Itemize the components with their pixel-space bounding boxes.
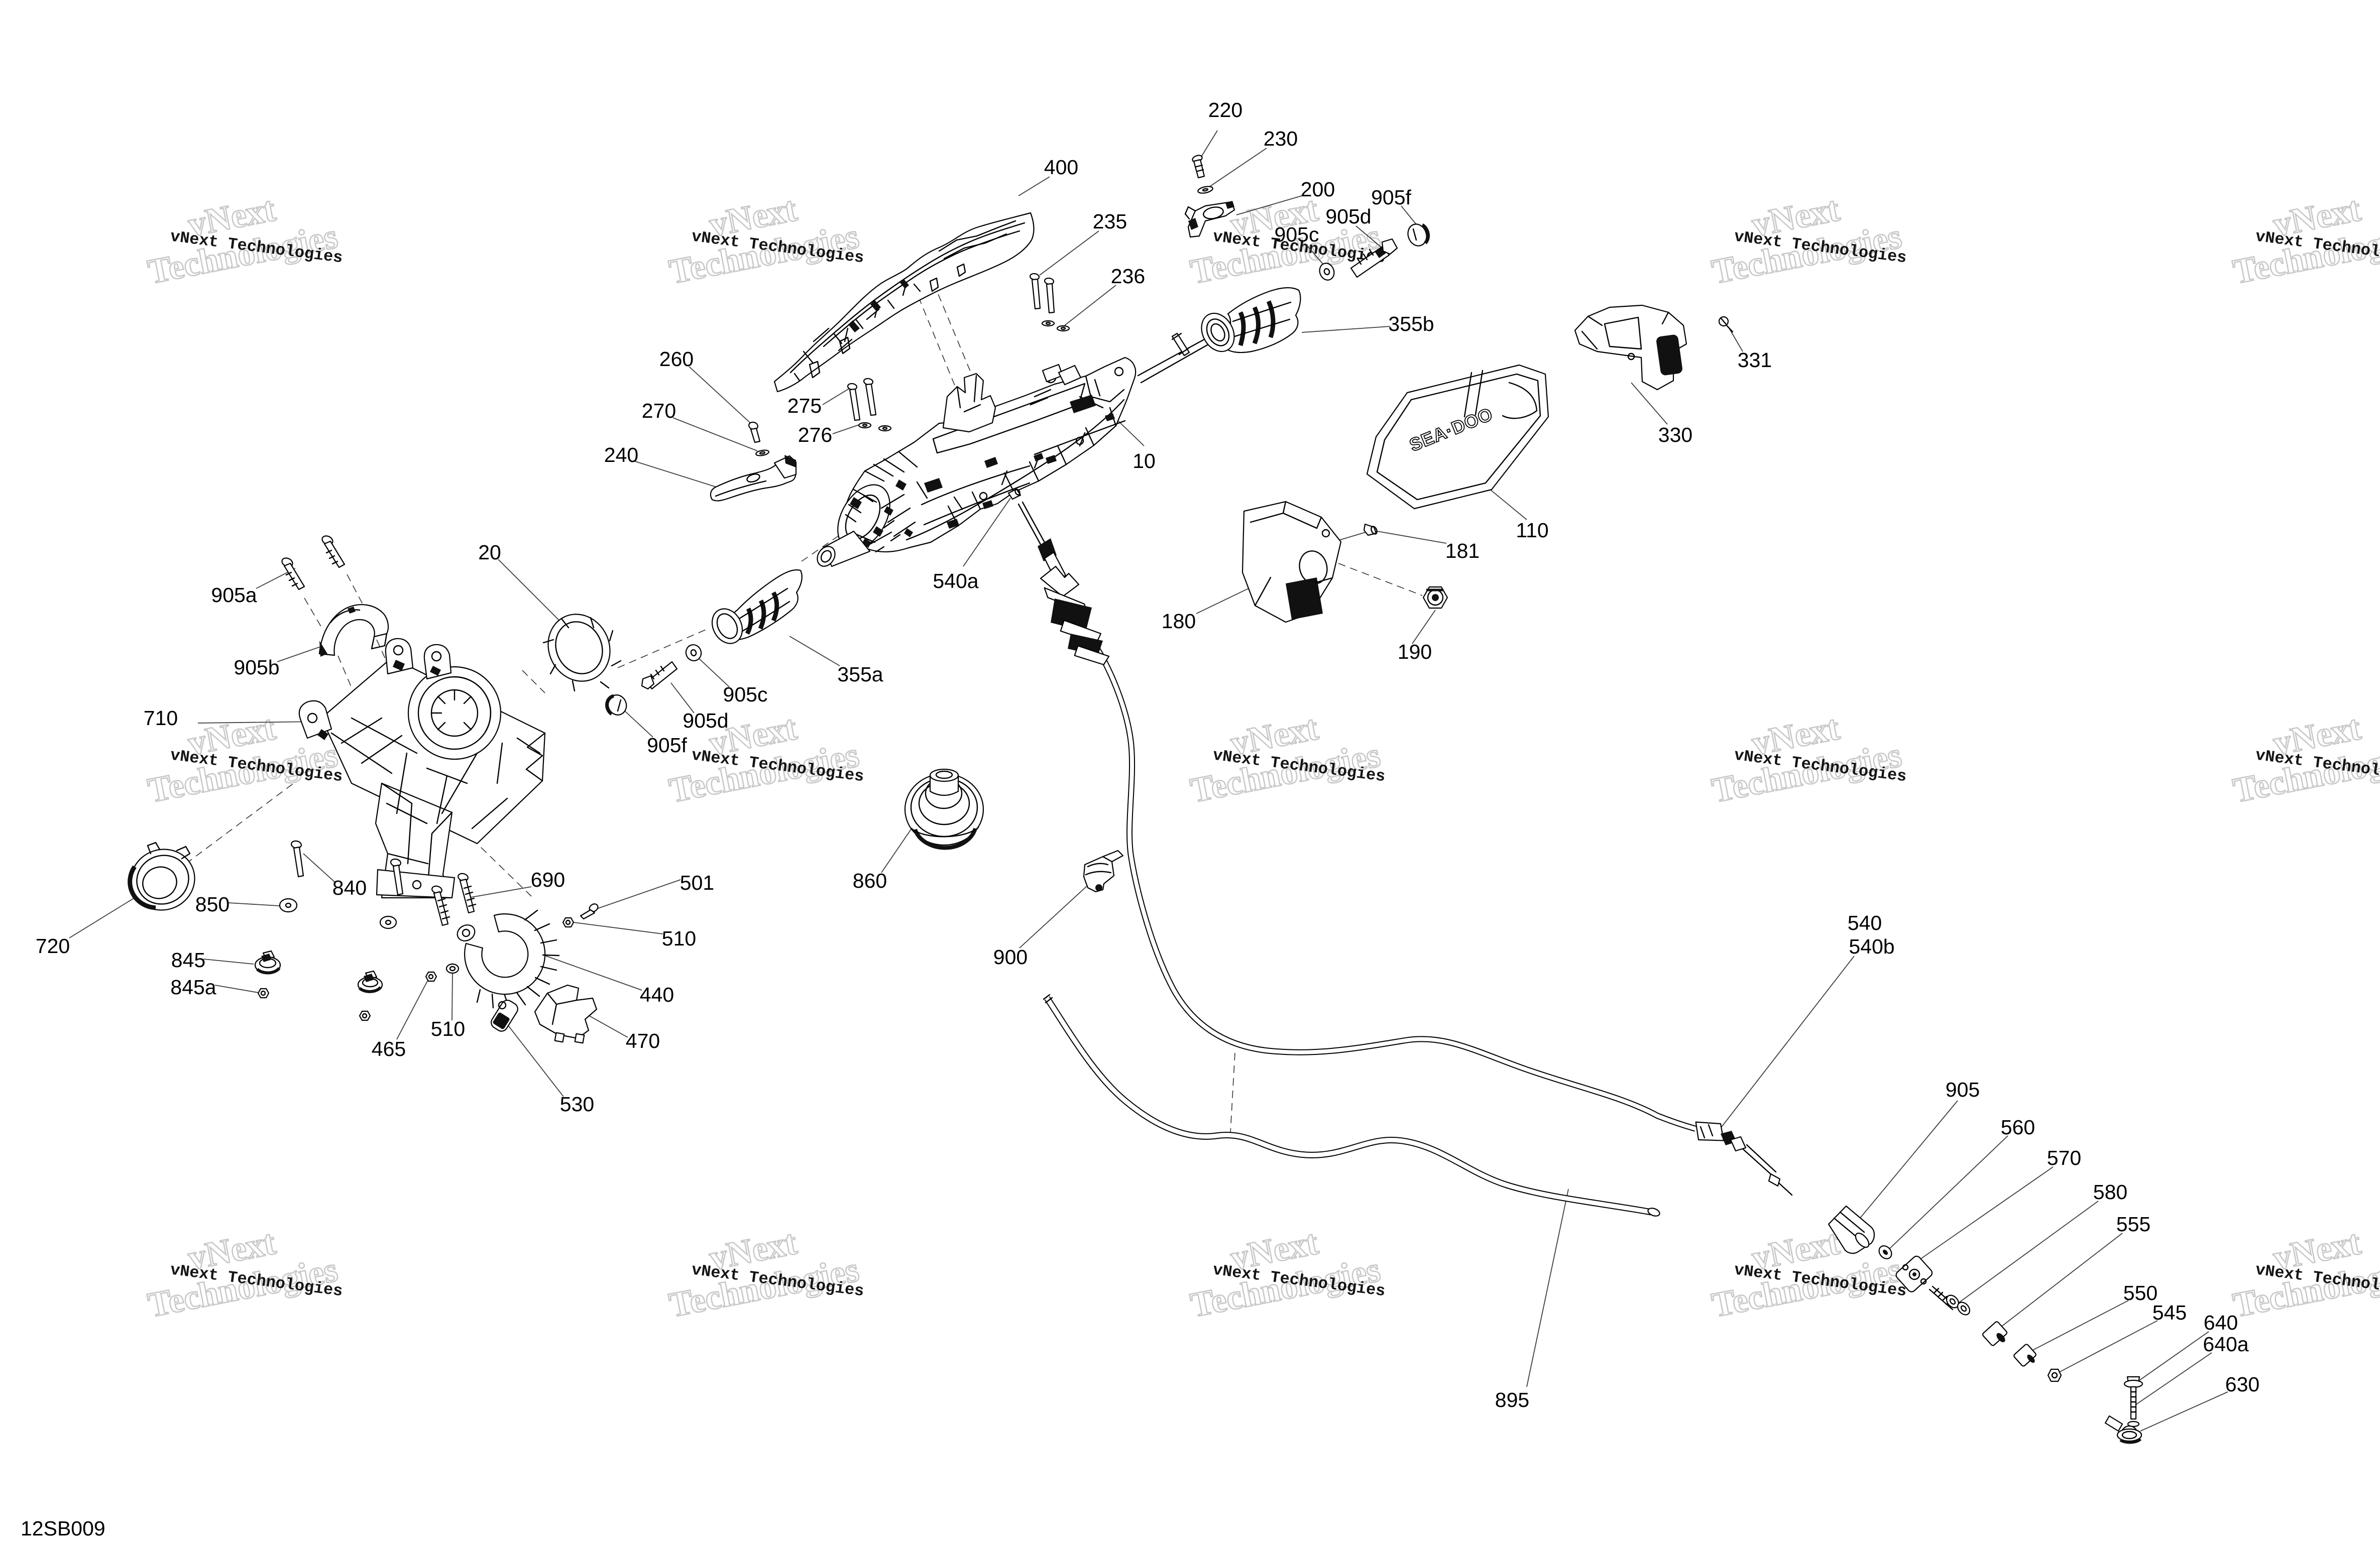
svg-text:260: 260	[659, 347, 694, 371]
svg-text:545: 545	[2152, 1301, 2187, 1324]
svg-text:905: 905	[1946, 1078, 1980, 1101]
svg-text:240: 240	[604, 443, 638, 466]
svg-text:540b: 540b	[1849, 935, 1894, 958]
svg-text:355a: 355a	[837, 663, 883, 686]
svg-text:905a: 905a	[211, 583, 257, 607]
svg-text:540a: 540a	[933, 569, 978, 592]
svg-text:900: 900	[993, 945, 1028, 969]
svg-text:570: 570	[2047, 1146, 2081, 1169]
svg-text:710: 710	[144, 706, 178, 730]
svg-text:640: 640	[2204, 1311, 2238, 1334]
svg-text:860: 860	[853, 869, 887, 892]
svg-text:331: 331	[1738, 348, 1772, 372]
svg-text:330: 330	[1658, 423, 1692, 446]
svg-text:180: 180	[1162, 610, 1196, 633]
svg-text:181: 181	[1445, 539, 1480, 562]
svg-text:630: 630	[2225, 1373, 2259, 1396]
svg-text:640a: 640a	[2203, 1333, 2248, 1356]
svg-text:905f: 905f	[647, 734, 687, 757]
svg-text:905d: 905d	[1325, 205, 1371, 228]
svg-text:905c: 905c	[1275, 223, 1319, 246]
svg-text:355b: 355b	[1388, 312, 1434, 335]
svg-text:400: 400	[1044, 156, 1078, 179]
svg-text:840: 840	[332, 876, 367, 899]
svg-text:10: 10	[1132, 449, 1156, 472]
svg-text:470: 470	[626, 1029, 660, 1052]
svg-text:905c: 905c	[723, 683, 768, 706]
svg-text:276: 276	[798, 423, 832, 446]
svg-text:540: 540	[1848, 911, 1882, 934]
svg-text:235: 235	[1093, 210, 1127, 233]
svg-text:236: 236	[1111, 265, 1145, 288]
svg-text:555: 555	[2116, 1213, 2150, 1236]
svg-text:530: 530	[560, 1093, 594, 1116]
svg-text:895: 895	[1495, 1388, 1529, 1411]
svg-text:20: 20	[478, 541, 501, 564]
svg-text:230: 230	[1264, 127, 1298, 150]
svg-text:465: 465	[372, 1037, 406, 1060]
svg-text:501: 501	[680, 871, 714, 894]
svg-text:905b: 905b	[234, 656, 279, 679]
svg-text:845: 845	[171, 948, 205, 972]
svg-text:720: 720	[36, 934, 70, 958]
svg-text:220: 220	[1208, 98, 1242, 122]
svg-text:110: 110	[1516, 519, 1548, 542]
svg-text:850: 850	[195, 893, 230, 916]
svg-text:190: 190	[1398, 640, 1432, 663]
svg-text:690: 690	[531, 868, 565, 891]
svg-text:200: 200	[1301, 178, 1335, 201]
svg-text:905d: 905d	[683, 709, 728, 732]
svg-text:270: 270	[642, 399, 676, 422]
svg-text:845a: 845a	[170, 976, 216, 999]
svg-text:580: 580	[2093, 1180, 2127, 1204]
svg-text:440: 440	[640, 983, 674, 1006]
svg-text:905f: 905f	[1371, 186, 1411, 209]
svg-text:510: 510	[662, 927, 696, 950]
svg-text:560: 560	[2001, 1116, 2035, 1139]
svg-text:275: 275	[787, 394, 822, 417]
svg-text:510: 510	[431, 1017, 465, 1040]
svg-text:12SB009: 12SB009	[21, 1517, 105, 1540]
